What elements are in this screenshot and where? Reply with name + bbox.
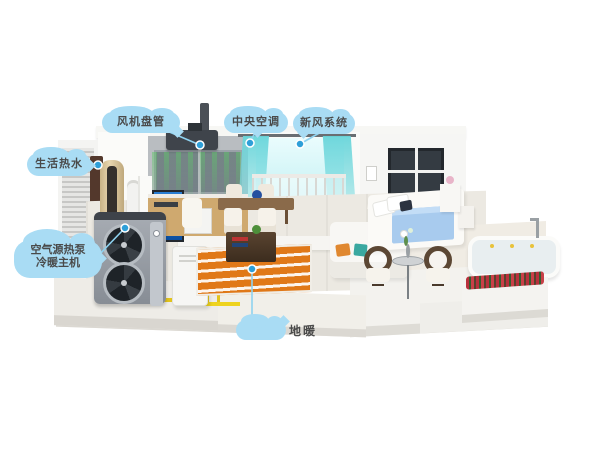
bedroom-window [388,148,444,196]
fan-bottom [103,262,145,304]
armchair [182,198,202,228]
heat-pump-home-illustration: 风机盘管 中央空调 新风系统 生活热水 空气源热泵 冷暖主机 地暖 [0,0,600,450]
chair-cushion [426,268,450,282]
callout-heat-pump-label: 空气源热泵 冷暖主机 [14,238,102,276]
flower-vase [398,228,418,258]
callout-hot-water-label: 生活热水 [27,151,91,174]
bath-faucet [536,218,539,238]
coffee-table [226,232,276,262]
dining-chair [224,208,242,234]
callout-fan-coil-label: 风机盘管 [102,110,180,131]
callout-hot-water: 生活热水 [27,153,91,176]
bathtub [468,236,560,278]
pillow-orange [335,243,351,257]
callout-floor-heating-cloud [236,320,286,340]
bedside-table [458,206,474,228]
heat-pump-side-panel [150,222,163,306]
patio-round-table [392,256,424,302]
callout-fan-coil: 风机盘管 [102,112,180,133]
callout-fresh-air-label: 新风系统 [293,111,355,132]
fan-top [103,224,145,266]
callout-fresh-air: 新风系统 [293,113,355,134]
callout-heat-pump: 空气源热泵 冷暖主机 [14,240,102,278]
wall-thermostat [366,166,377,181]
callout-central-ac: 中央空调 [224,112,288,133]
callout-floor-heating-label: 地暖 [289,322,343,338]
callout-central-ac-label: 中央空调 [224,110,288,131]
decor-stand [440,184,460,212]
chair-cushion [366,268,390,282]
cooktop [154,202,178,207]
